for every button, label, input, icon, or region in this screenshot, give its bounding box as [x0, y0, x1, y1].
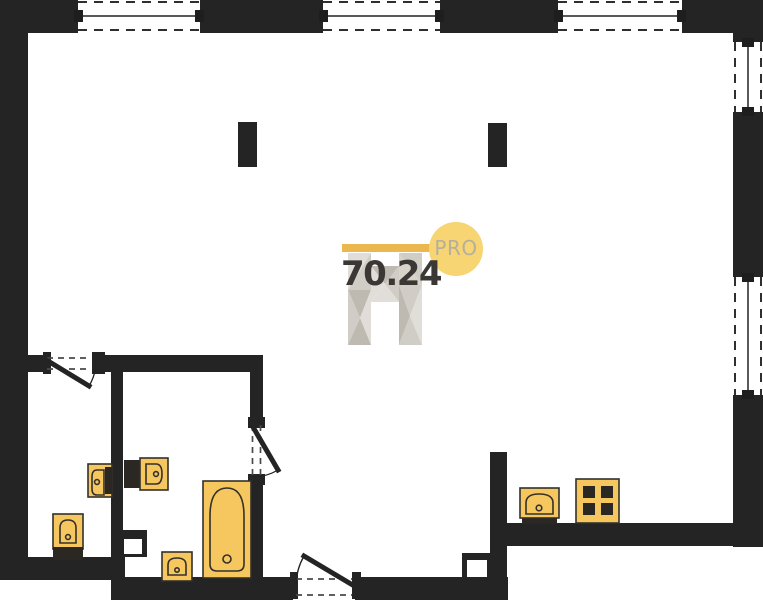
brand-label: PRO — [431, 238, 481, 258]
bathroom-door-leaf — [253, 427, 278, 470]
bathtub — [203, 481, 251, 578]
bath-washbasin — [162, 552, 192, 581]
entrance-door-leaf — [304, 556, 356, 587]
wc-bidet — [53, 514, 83, 560]
wc-door-jamb-1 — [92, 352, 105, 374]
kitchen-sink-shape — [536, 505, 542, 511]
wc-toilet-shape — [95, 480, 100, 485]
wc-door-leaf — [48, 361, 89, 386]
area-label: 70.24 — [341, 257, 441, 291]
kitchen-stove-shape — [583, 486, 595, 498]
wc-bidet-shape — [66, 535, 71, 540]
wc-bidet-shape — [53, 547, 83, 560]
kitchen-stove-shape — [576, 479, 619, 523]
bath-vanity-sink-shape — [154, 472, 159, 477]
bathtub-shape — [223, 555, 231, 563]
kitchen-stove-shape — [601, 486, 613, 498]
bath-washbasin-shape — [175, 568, 179, 572]
wc-toilet-shape — [105, 467, 112, 494]
kitchen-stove — [576, 479, 619, 524]
kitchen-stove-shape — [583, 503, 595, 515]
wc-toilet — [88, 464, 112, 497]
plan-vector-layer — [0, 0, 763, 600]
bath-vanity-sink — [140, 458, 168, 490]
floor-plan: 70.24 PRO — [0, 0, 763, 600]
brand-bar — [342, 244, 434, 252]
kitchen-sink — [520, 488, 559, 524]
kitchen-stove-shape — [601, 503, 613, 515]
